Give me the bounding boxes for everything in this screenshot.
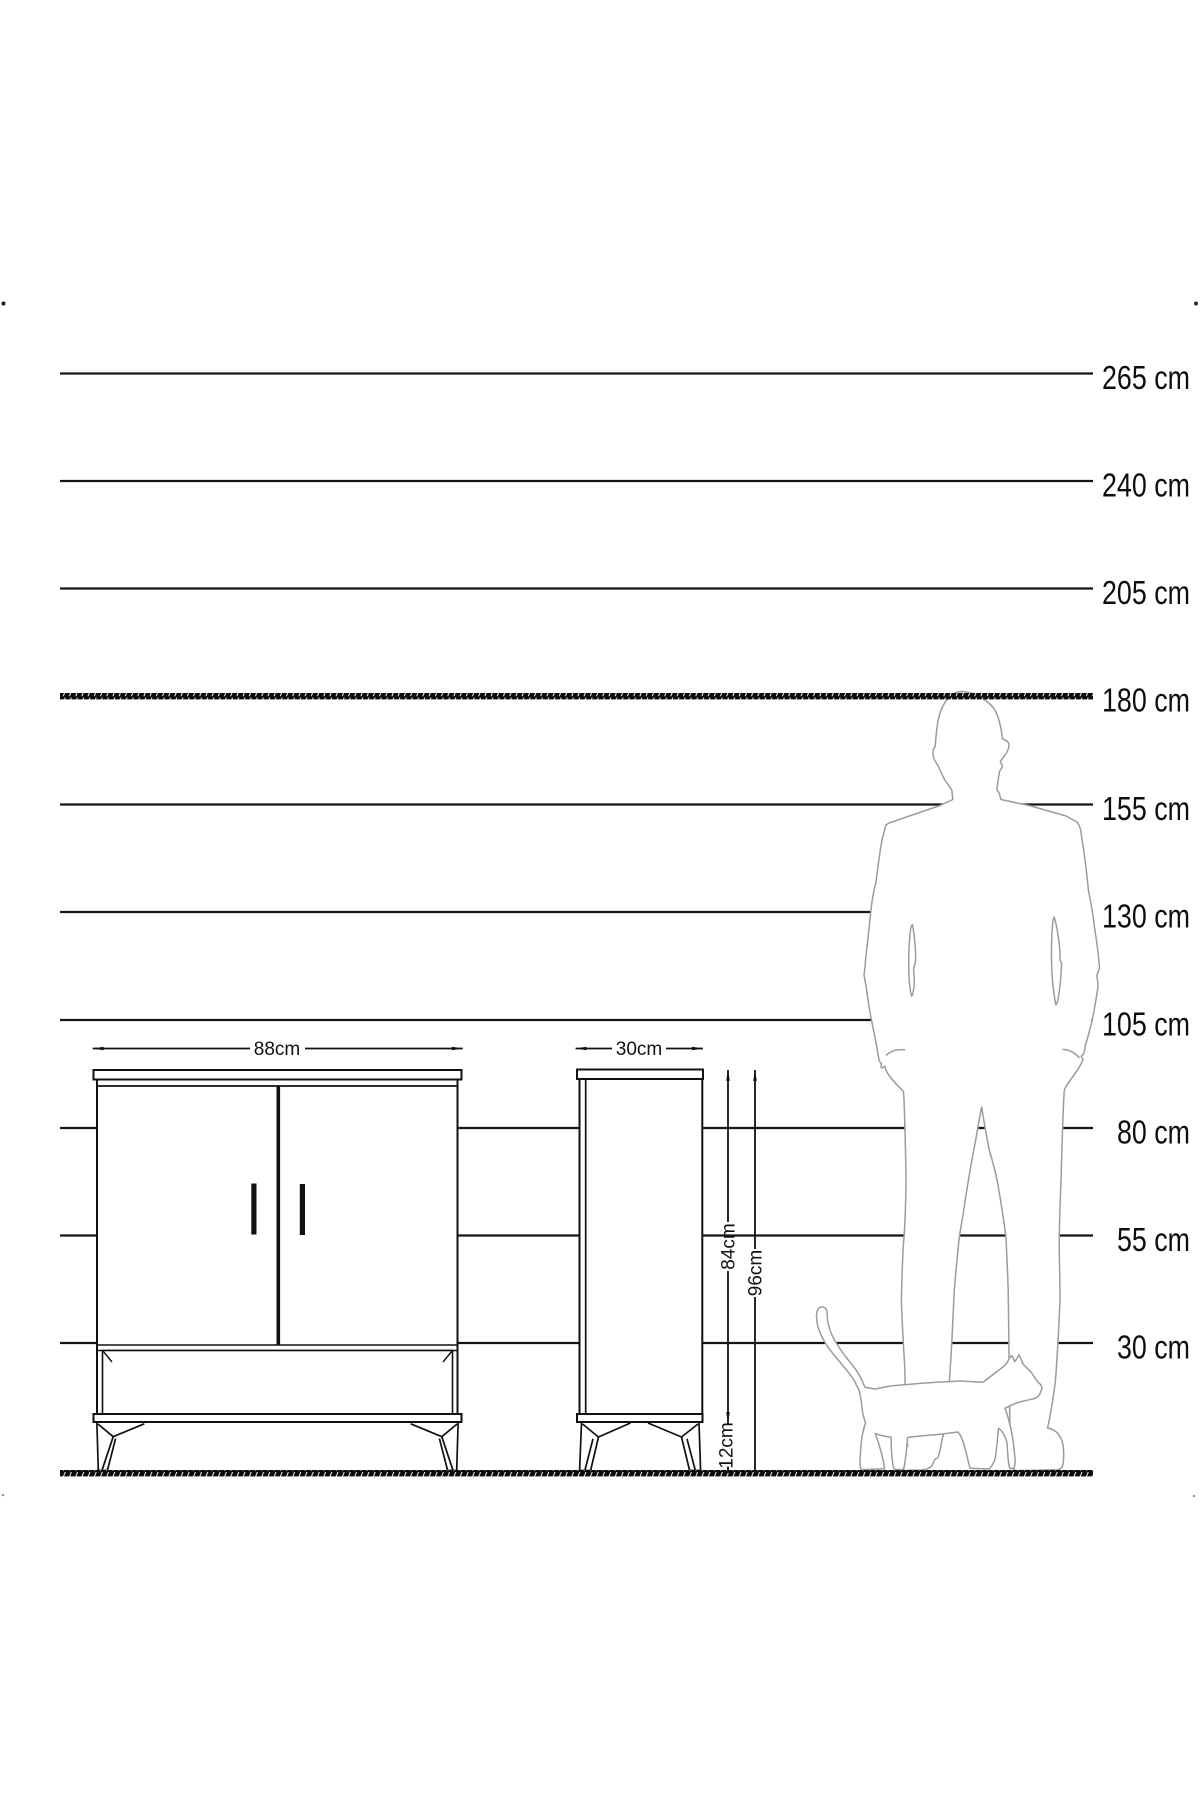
svg-text:240 cm: 240 cm bbox=[1102, 467, 1190, 504]
svg-text:55 cm: 55 cm bbox=[1117, 1221, 1190, 1258]
svg-text:96cm: 96cm bbox=[746, 1250, 767, 1296]
svg-text:88cm: 88cm bbox=[254, 1039, 300, 1060]
svg-text:30cm: 30cm bbox=[616, 1039, 662, 1060]
svg-text:155 cm: 155 cm bbox=[1102, 790, 1190, 827]
svg-text:205 cm: 205 cm bbox=[1102, 574, 1190, 611]
svg-text:30 cm: 30 cm bbox=[1117, 1329, 1190, 1366]
svg-text:80 cm: 80 cm bbox=[1117, 1114, 1190, 1151]
svg-text:105 cm: 105 cm bbox=[1102, 1006, 1190, 1043]
svg-text:130 cm: 130 cm bbox=[1102, 898, 1190, 935]
svg-text:265 cm: 265 cm bbox=[1102, 359, 1190, 396]
svg-text:84cm: 84cm bbox=[719, 1223, 740, 1269]
svg-text:12cm: 12cm bbox=[717, 1422, 738, 1468]
svg-text:180 cm: 180 cm bbox=[1102, 682, 1190, 719]
